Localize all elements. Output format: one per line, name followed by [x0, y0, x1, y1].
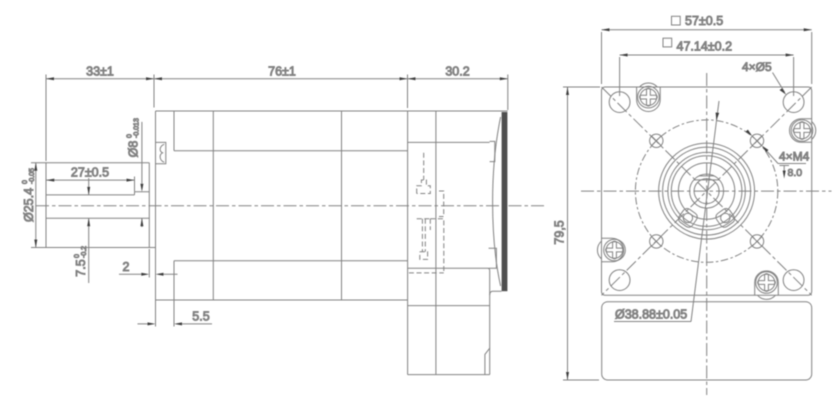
svg-text:Ø38.88±0.05: Ø38.88±0.05	[615, 308, 687, 322]
svg-text:33±1: 33±1	[86, 65, 114, 79]
svg-text:5.5: 5.5	[192, 309, 209, 323]
svg-text:30.2: 30.2	[445, 65, 469, 79]
svg-text:Ø25.4: Ø25.4	[22, 188, 36, 222]
svg-text:76±1: 76±1	[268, 65, 296, 79]
svg-text:0: 0	[127, 134, 134, 138]
svg-text:-0.2: -0.2	[81, 246, 88, 258]
svg-text:47.14±0.2: 47.14±0.2	[677, 40, 733, 54]
svg-text:79,5: 79,5	[553, 220, 567, 244]
svg-text:-0.05: -0.05	[29, 168, 36, 184]
svg-text:4×Ø5: 4×Ø5	[742, 60, 772, 74]
svg-text:0: 0	[22, 180, 29, 184]
svg-text:4×M4: 4×M4	[779, 150, 810, 164]
svg-text:-0.013: -0.013	[134, 118, 141, 138]
svg-text:0: 0	[74, 254, 81, 258]
svg-text:27±0.5: 27±0.5	[71, 165, 109, 179]
svg-text:2: 2	[123, 260, 130, 274]
svg-text:Ø8: Ø8	[127, 141, 141, 158]
svg-text:8.0: 8.0	[788, 167, 803, 179]
svg-text:57±0.5: 57±0.5	[685, 14, 723, 28]
svg-text:7.5: 7.5	[74, 259, 88, 276]
